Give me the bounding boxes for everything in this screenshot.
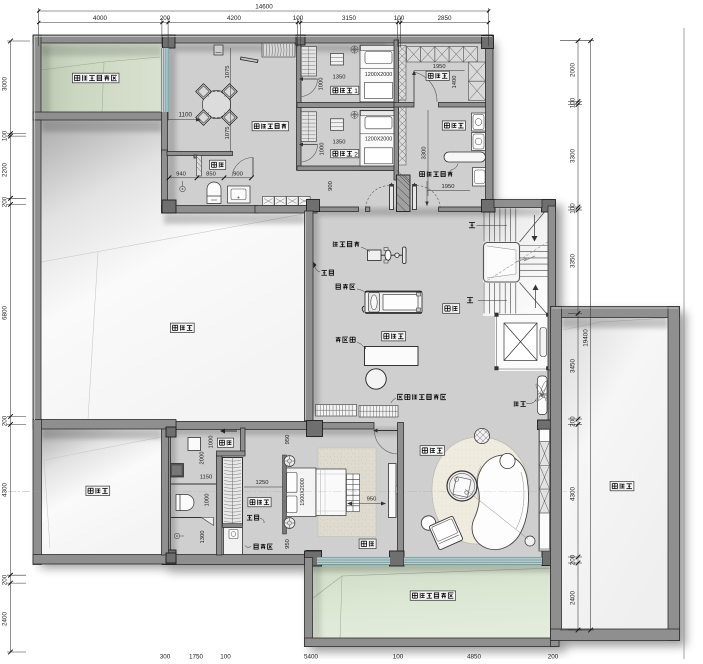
svg-text:2000: 2000 xyxy=(200,452,206,465)
svg-text:200: 200 xyxy=(570,554,577,565)
svg-text:200: 200 xyxy=(570,416,577,427)
svg-text:1350: 1350 xyxy=(333,74,346,80)
svg-text:2400: 2400 xyxy=(570,591,577,606)
svg-text:1075: 1075 xyxy=(225,127,231,140)
svg-text:3350: 3350 xyxy=(570,254,577,269)
svg-text:200: 200 xyxy=(2,574,9,585)
svg-text:3300: 3300 xyxy=(570,149,577,164)
svg-text:1950: 1950 xyxy=(442,184,455,190)
svg-text:100: 100 xyxy=(393,654,404,660)
svg-text:1000: 1000 xyxy=(205,494,211,507)
svg-text:1000: 1000 xyxy=(209,436,215,449)
svg-text:300: 300 xyxy=(160,654,171,660)
svg-text:6800: 6800 xyxy=(2,306,9,321)
svg-text:1075: 1075 xyxy=(225,66,231,79)
svg-text:900: 900 xyxy=(233,172,243,178)
svg-text:200: 200 xyxy=(2,415,9,426)
svg-text:1750: 1750 xyxy=(189,654,204,660)
svg-text:2850: 2850 xyxy=(437,15,452,22)
svg-text:3300: 3300 xyxy=(422,147,428,160)
svg-text:5400: 5400 xyxy=(304,654,319,660)
svg-text:4850: 4850 xyxy=(467,654,482,660)
svg-text:950: 950 xyxy=(367,497,377,503)
svg-text:1500X2000: 1500X2000 xyxy=(300,478,306,506)
svg-text:3450: 3450 xyxy=(570,359,577,374)
svg-text:2200: 2200 xyxy=(2,163,9,178)
svg-text:200: 200 xyxy=(2,196,9,207)
svg-text:940: 940 xyxy=(176,172,186,178)
svg-text:100: 100 xyxy=(220,654,231,660)
svg-text:200: 200 xyxy=(160,15,171,22)
svg-text:2: 2 xyxy=(354,151,358,158)
svg-text:1000: 1000 xyxy=(319,78,325,91)
svg-text:2000: 2000 xyxy=(570,63,577,78)
svg-text:1200X2000: 1200X2000 xyxy=(365,137,393,143)
svg-text:200: 200 xyxy=(548,654,559,660)
svg-text:4200: 4200 xyxy=(227,15,242,22)
svg-text:4300: 4300 xyxy=(2,483,9,498)
svg-text:100: 100 xyxy=(394,15,405,22)
svg-text:950: 950 xyxy=(285,539,291,549)
svg-text:1300: 1300 xyxy=(200,531,206,544)
svg-text:1100: 1100 xyxy=(179,112,193,119)
svg-text:100: 100 xyxy=(2,130,9,141)
svg-text:1350: 1350 xyxy=(333,140,346,146)
svg-text:1150: 1150 xyxy=(200,475,212,481)
svg-text:900: 900 xyxy=(328,181,334,191)
svg-text:1950: 1950 xyxy=(433,64,446,70)
svg-text:100: 100 xyxy=(570,203,577,214)
svg-text:2400: 2400 xyxy=(2,612,9,627)
svg-text:4000: 4000 xyxy=(93,15,108,22)
svg-text:1000: 1000 xyxy=(320,143,326,156)
svg-text:1250: 1250 xyxy=(256,480,269,486)
svg-text:1200X2000: 1200X2000 xyxy=(365,72,393,78)
svg-text:850: 850 xyxy=(206,172,216,178)
svg-text:3000: 3000 xyxy=(2,77,9,92)
svg-text:100: 100 xyxy=(293,15,304,22)
svg-text:100: 100 xyxy=(570,97,577,108)
svg-text:950: 950 xyxy=(285,435,291,445)
svg-text:1: 1 xyxy=(354,88,358,95)
svg-text:19400: 19400 xyxy=(583,329,590,347)
svg-text:1400: 1400 xyxy=(452,76,458,89)
svg-text:14600: 14600 xyxy=(255,4,273,11)
svg-text:3150: 3150 xyxy=(342,15,357,22)
svg-text:4300: 4300 xyxy=(570,487,577,502)
